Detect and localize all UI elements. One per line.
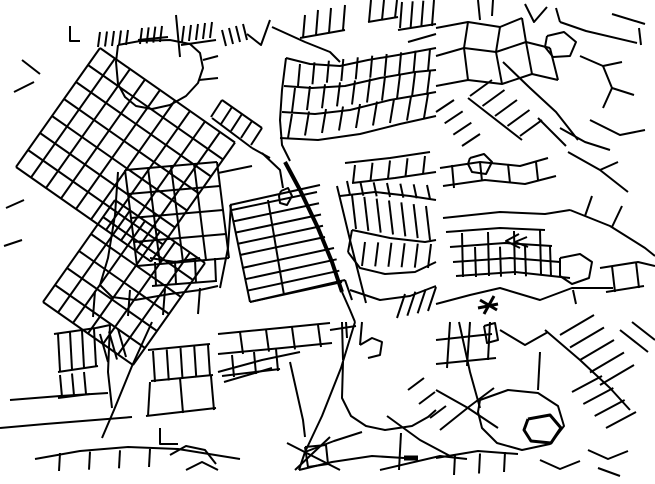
road-segment [453, 123, 471, 135]
road-segment [76, 90, 160, 209]
road-segment [240, 332, 243, 354]
road-segment [536, 162, 538, 180]
road-segment [620, 330, 648, 352]
road-segment [414, 204, 418, 238]
road-segment [288, 114, 292, 138]
road-segment [352, 230, 436, 242]
road-segment [500, 330, 548, 345]
road-segment [525, 4, 547, 22]
road-segment [43, 200, 115, 302]
road-segment [395, 0, 397, 18]
road-segment [167, 350, 169, 381]
road-segment [175, 261, 176, 285]
road-segment [31, 59, 115, 178]
road-segment [495, 100, 517, 116]
road-segment [61, 80, 145, 199]
road-segment [478, 0, 480, 20]
road-segment [203, 23, 205, 39]
road-segment [340, 192, 436, 200]
road-segment [262, 153, 283, 188]
road-segment [388, 161, 390, 179]
road-segment [360, 322, 362, 345]
road-segment [462, 233, 463, 277]
road-segment [423, 156, 425, 174]
road-segment [149, 449, 150, 467]
road-segment [550, 48, 558, 80]
road-segment [181, 348, 183, 379]
road-segment [279, 188, 292, 205]
road-segment [545, 330, 630, 410]
road-segment [148, 344, 210, 350]
road-segment [525, 246, 526, 276]
road-segment [316, 10, 318, 35]
road-segment [218, 323, 330, 334]
road-segment [479, 454, 480, 474]
road-segment [414, 51, 416, 73]
road-segment [292, 88, 295, 112]
road-segment [427, 71, 430, 95]
road-segment [146, 408, 216, 416]
road-segment [580, 56, 622, 66]
road-segment [229, 28, 233, 44]
road-segment [305, 112, 309, 136]
road-segment [443, 210, 570, 218]
road-segment [560, 315, 594, 335]
road-segment [82, 331, 84, 368]
road-segment [303, 15, 305, 38]
road-segment [560, 254, 592, 284]
road-segment [436, 42, 550, 56]
road-segment [639, 28, 641, 45]
road-segment [426, 206, 430, 240]
road-segment [300, 30, 345, 38]
road-segment [432, 0, 434, 26]
road-segment [58, 334, 60, 371]
road-segment [556, 8, 560, 22]
road-segment [550, 246, 551, 276]
road-segment [245, 259, 337, 279]
road-segment [4, 240, 22, 246]
road-segment [483, 90, 505, 106]
road-segment [606, 412, 636, 428]
road-segment [421, 1, 423, 27]
road-segment [400, 2, 402, 28]
road-segment [585, 196, 592, 216]
road-segment [362, 242, 365, 266]
road-segment [360, 338, 382, 358]
road-segment [570, 210, 655, 256]
road-segment [612, 206, 622, 227]
road-segment [35, 447, 240, 459]
road-segment [208, 345, 210, 376]
road-segment [312, 62, 314, 84]
road-segment [186, 462, 218, 470]
road-segment [540, 230, 541, 274]
road-segment [445, 111, 463, 123]
road-segment [176, 15, 180, 57]
road-segment [480, 162, 482, 181]
road-segment [464, 22, 468, 48]
road-segment [356, 57, 358, 79]
road-segment [427, 185, 430, 199]
road-segment [236, 26, 240, 42]
road-segment [70, 26, 80, 41]
road-segment [600, 365, 634, 385]
road-segment [398, 24, 436, 30]
road-segment [60, 375, 62, 397]
road-segment [424, 94, 428, 118]
road-segment [603, 66, 612, 108]
road-segment [488, 232, 489, 276]
road-segment [408, 34, 436, 42]
road-segment [218, 352, 300, 372]
road-segment [540, 460, 580, 469]
road-segment [538, 352, 540, 390]
road-segment [218, 166, 252, 173]
road-segment [488, 322, 490, 360]
road-segment [371, 163, 373, 181]
road-segment [160, 428, 178, 444]
road-segment [346, 322, 347, 338]
road-segment [464, 48, 468, 80]
road-segment [347, 181, 350, 195]
road-segment [251, 128, 262, 145]
road-segment [411, 1, 413, 27]
road-segment [568, 152, 628, 192]
road-segment [388, 243, 391, 267]
road-segment [22, 60, 40, 74]
road-segment [121, 122, 205, 241]
road-segment [508, 110, 530, 126]
road-segment [436, 100, 454, 112]
road-segment [415, 244, 418, 268]
road-segment [407, 97, 411, 121]
road-segment [600, 162, 618, 170]
road-segment [182, 26, 184, 42]
road-segment [440, 388, 494, 430]
road-segment [508, 164, 510, 183]
road-segment [453, 258, 560, 262]
road-segment [369, 0, 371, 22]
road-segment [40, 133, 175, 228]
road-segment [6, 200, 24, 208]
road-segment [105, 32, 107, 47]
road-segment [343, 5, 345, 30]
road-segment [241, 121, 252, 138]
road-segment [348, 252, 436, 274]
road-segment [280, 58, 290, 161]
road-segment [352, 195, 356, 229]
road-segment [496, 27, 500, 52]
road-segment [298, 64, 300, 86]
road-segment [454, 455, 455, 475]
road-segment [10, 393, 108, 400]
road-segment [215, 258, 216, 282]
road-segment [211, 100, 222, 117]
road-segment [195, 259, 196, 283]
road-segment [377, 199, 381, 233]
road-segment [180, 378, 183, 413]
road-segment [573, 290, 576, 304]
road-segment [70, 332, 72, 369]
road-segment [598, 468, 620, 476]
road-segment [135, 286, 218, 300]
road-segment [119, 450, 120, 468]
road-segment [88, 232, 160, 334]
road-segment [247, 271, 339, 291]
road-segment [636, 262, 639, 288]
road-segment [72, 374, 74, 396]
road-segment [250, 280, 345, 302]
road-segment [600, 262, 655, 268]
road-segment [382, 0, 384, 20]
road-segment [76, 82, 211, 177]
road-segment [59, 453, 60, 471]
road-segment [538, 118, 566, 146]
road-segment [632, 322, 655, 340]
road-segment [524, 415, 561, 443]
road-segment [436, 74, 558, 86]
road-segment [367, 79, 370, 103]
road-segment [590, 353, 624, 373]
road-segment [98, 32, 100, 47]
road-segment [94, 329, 96, 366]
road-segment [572, 376, 602, 392]
road-segment [522, 18, 526, 42]
road-segment [545, 32, 576, 57]
road-segment [231, 114, 242, 131]
road-segment [222, 30, 226, 46]
road-segment [440, 158, 548, 168]
road-segment [406, 158, 408, 176]
road-segment [560, 22, 637, 43]
road-segment [116, 40, 203, 109]
road-segment [100, 48, 235, 143]
road-segment [109, 332, 117, 360]
road-segment [243, 24, 247, 40]
road-segment [211, 376, 214, 410]
road-segment [583, 388, 613, 404]
road-segment [212, 118, 252, 148]
road-segment [462, 134, 480, 146]
road-segment [364, 197, 368, 231]
road-segment [412, 73, 415, 97]
road-segment [504, 452, 505, 472]
road-segment [443, 176, 556, 186]
road-segment [112, 31, 114, 46]
road-segment [232, 355, 234, 377]
road-segment [428, 287, 436, 311]
road-segment [342, 292, 355, 322]
road-segment [390, 99, 394, 123]
road-segment [588, 450, 628, 459]
road-segment [341, 59, 343, 81]
road-segment [84, 372, 86, 394]
road-segment [570, 328, 604, 348]
road-segment [220, 204, 231, 288]
road-segment [247, 20, 270, 45]
road-segment [560, 128, 610, 150]
road-segment [218, 343, 332, 354]
road-segment [221, 107, 232, 124]
road-segment [475, 247, 476, 277]
road-segment [342, 362, 436, 430]
road-segment [189, 25, 191, 41]
road-segment [28, 150, 163, 245]
road-segment [436, 358, 496, 364]
road-segment [58, 366, 98, 372]
road-segment [203, 56, 218, 60]
road-segment [198, 288, 200, 314]
road-segment [0, 417, 132, 428]
road-segment [580, 340, 614, 360]
road-segment [446, 228, 545, 232]
road-segment [199, 78, 218, 80]
road-segment [382, 77, 385, 101]
road-segment [64, 99, 199, 194]
road-segment [450, 243, 552, 247]
road-segment [276, 349, 278, 371]
road-segment [500, 247, 501, 277]
road-segment [96, 325, 110, 328]
road-segment [397, 75, 400, 99]
road-segment [375, 242, 378, 266]
road-segment [329, 8, 331, 33]
road-segment [119, 31, 121, 46]
road-segment [408, 378, 424, 390]
road-segment [155, 262, 156, 286]
road-segment [14, 82, 34, 92]
street-map-svg [0, 0, 655, 484]
road-segment [268, 200, 284, 295]
road-segment [148, 382, 150, 416]
road-segment [526, 42, 532, 74]
road-segment [196, 24, 198, 40]
road-segment [210, 22, 212, 38]
road-segment [428, 49, 430, 71]
road-segment [402, 243, 405, 267]
road-segment [419, 392, 435, 404]
road-segment [436, 334, 492, 340]
road-segment [153, 351, 155, 382]
road-segment [89, 452, 90, 470]
road-segment [492, 0, 493, 16]
street-map-image [0, 0, 655, 484]
road-segment [496, 52, 502, 84]
road-segment [307, 86, 310, 110]
road-segment [252, 148, 270, 158]
road-segment [468, 98, 522, 140]
road-segment [401, 202, 405, 236]
road-segment [612, 88, 634, 95]
road-segment [345, 152, 430, 163]
road-segment [389, 201, 393, 235]
road-segment [595, 400, 625, 416]
road-segment [520, 120, 542, 136]
road-segment [612, 14, 645, 24]
road-segment [194, 347, 196, 378]
road-segment [290, 362, 305, 437]
road-segment [436, 288, 613, 304]
road-segment [590, 120, 645, 135]
road-segment [374, 182, 377, 196]
road-segment [353, 165, 355, 183]
road-segment [52, 116, 187, 211]
road-segment [456, 272, 570, 278]
road-segment [387, 183, 390, 197]
road-segment [91, 101, 175, 220]
road-segment [484, 323, 498, 343]
road-segment [447, 322, 450, 368]
road-segment [327, 61, 329, 83]
road-segment [46, 69, 130, 188]
